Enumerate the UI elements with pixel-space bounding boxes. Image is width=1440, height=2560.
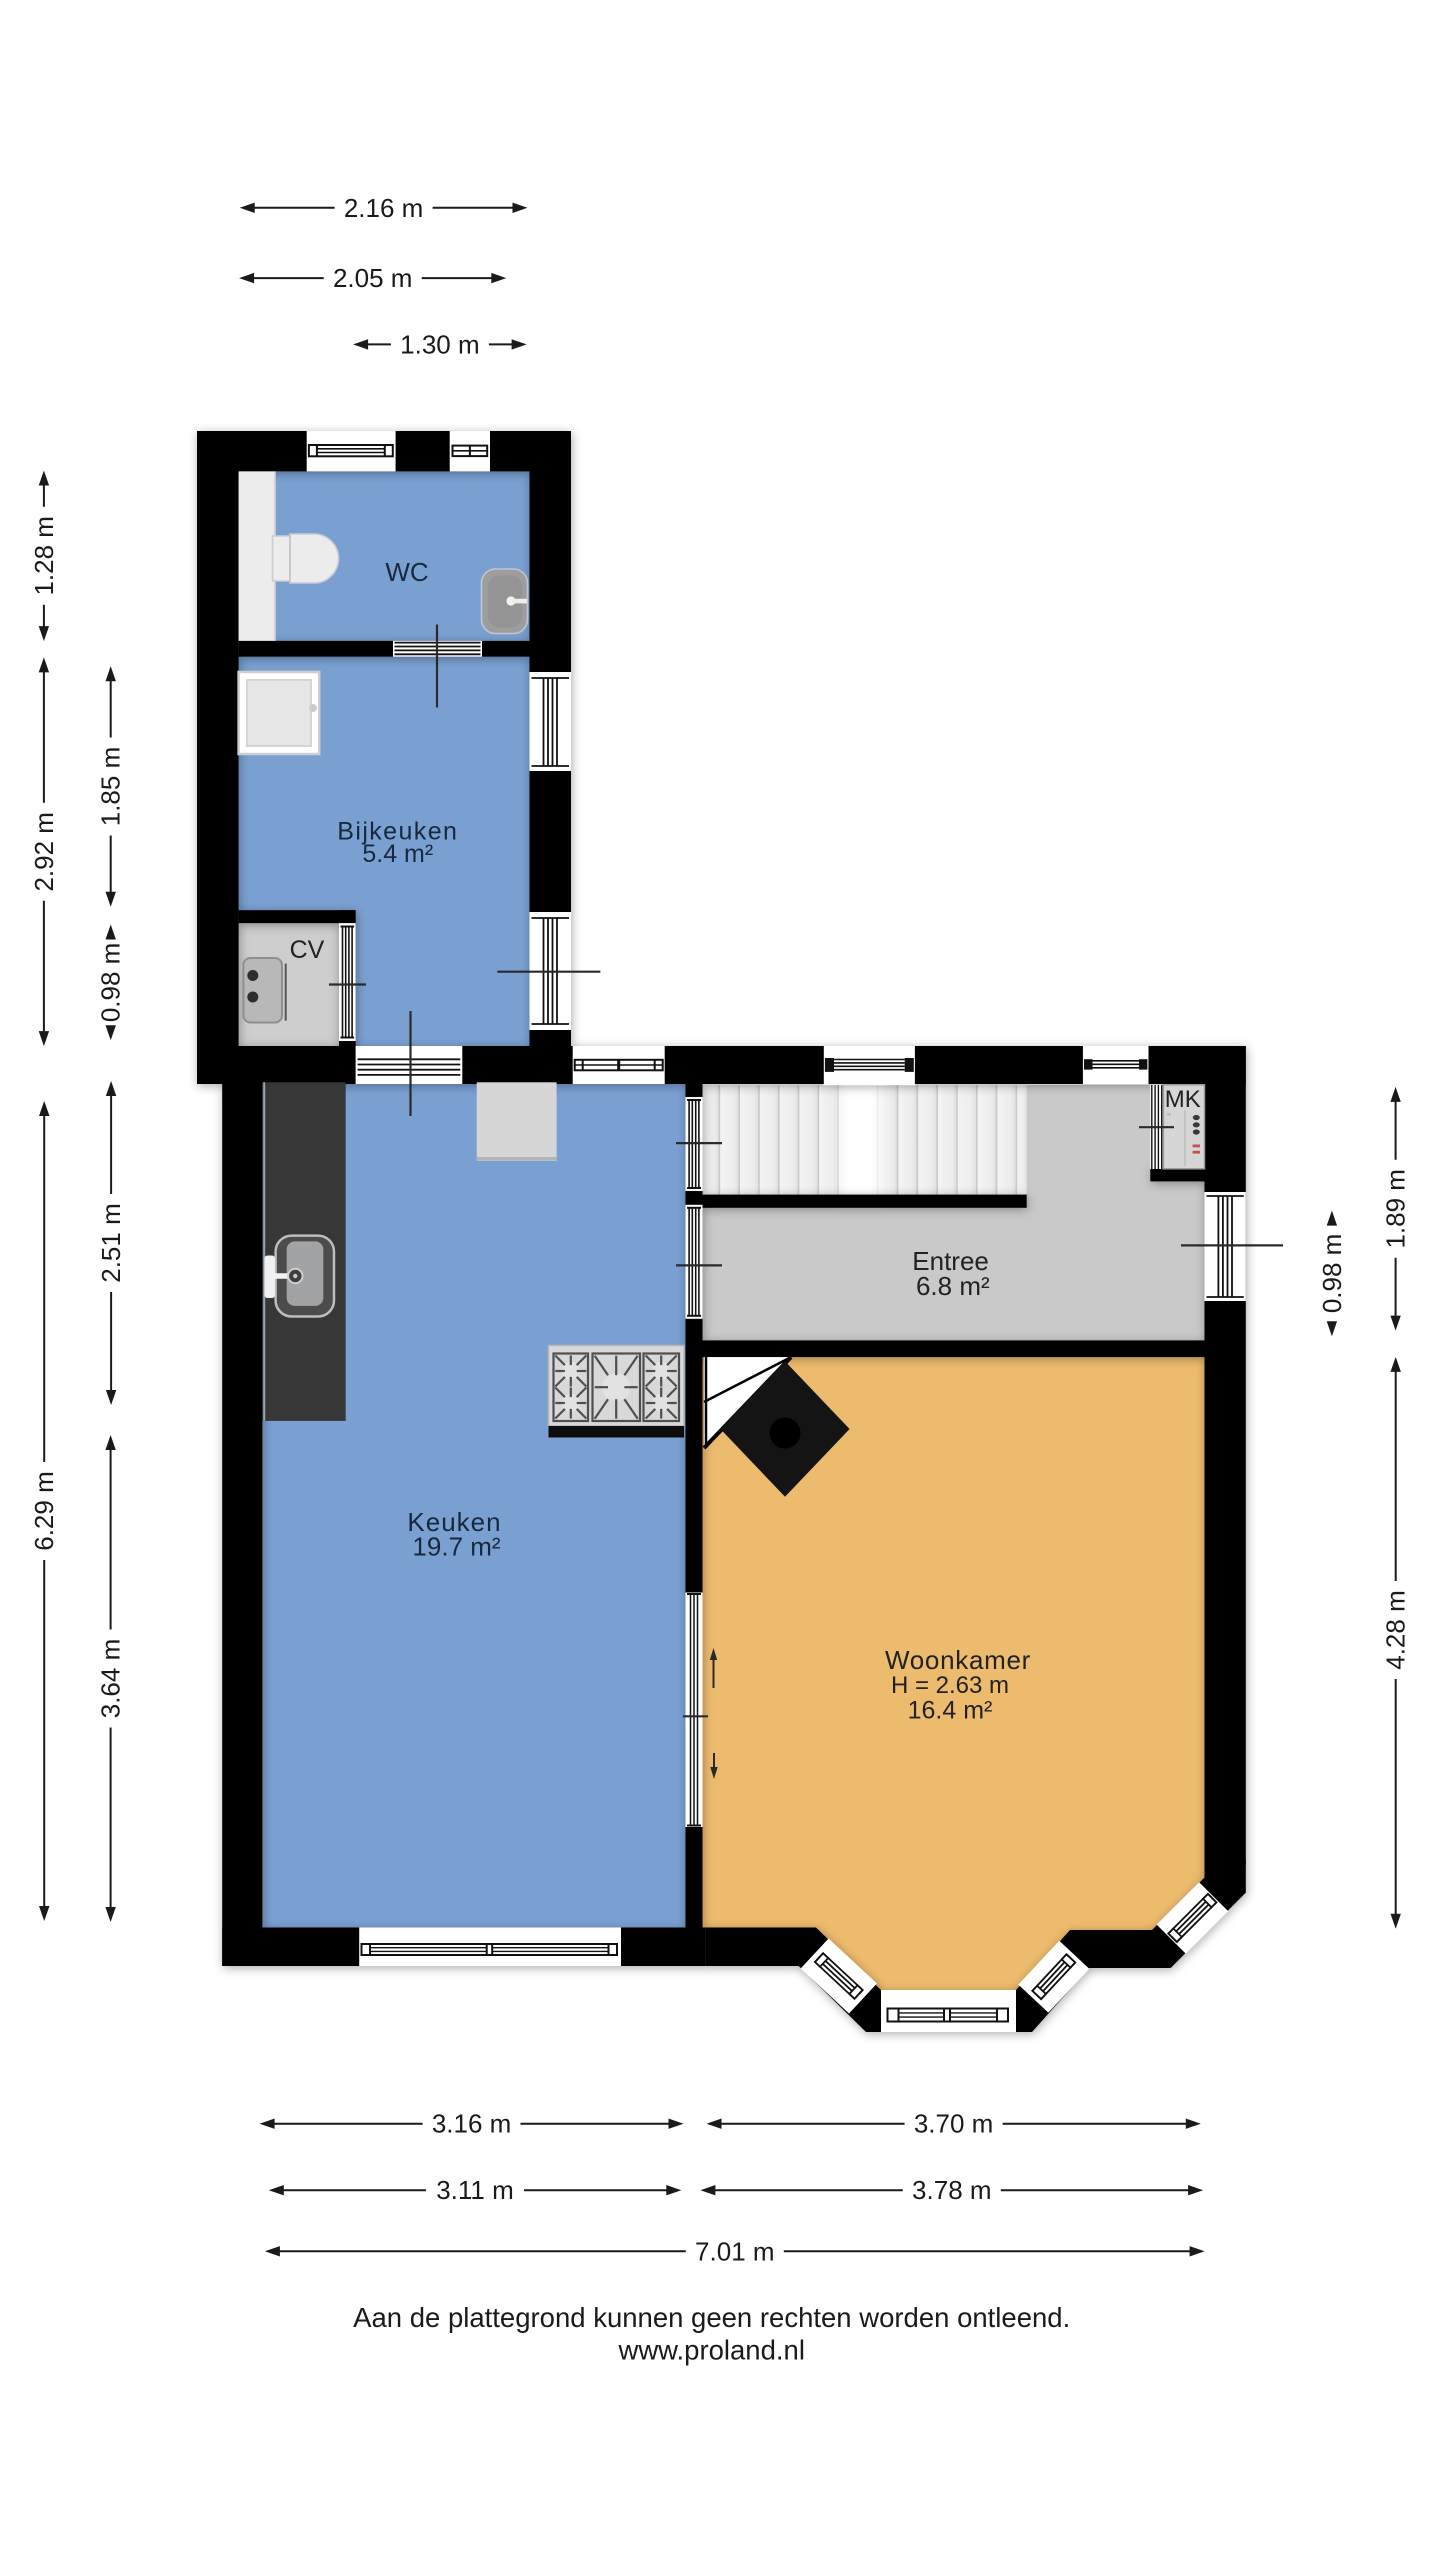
svg-text:19.7 m²: 19.7 m²	[412, 1532, 500, 1562]
svg-text:WC: WC	[385, 557, 428, 587]
svg-text:1.89 m: 1.89 m	[1381, 1169, 1411, 1249]
svg-text:H = 2.63 m: H = 2.63 m	[891, 1672, 1009, 1699]
svg-text:1.85 m: 1.85 m	[96, 747, 126, 827]
svg-text:0.98 m: 0.98 m	[96, 943, 126, 1023]
svg-text:6.29 m: 6.29 m	[29, 1471, 59, 1551]
svg-text:5.4 m²: 5.4 m²	[362, 840, 433, 868]
svg-text:3.16 m: 3.16 m	[432, 2109, 512, 2139]
svg-text:1.28 m: 1.28 m	[29, 516, 59, 596]
svg-text:2.51 m: 2.51 m	[96, 1203, 126, 1283]
svg-text:Woonkamer: Woonkamer	[885, 1645, 1031, 1675]
svg-text:3.64 m: 3.64 m	[96, 1639, 126, 1719]
svg-text:CV: CV	[290, 936, 325, 964]
svg-text:MK: MK	[1165, 1086, 1201, 1113]
svg-text:6.8 m²: 6.8 m²	[916, 1271, 990, 1301]
svg-text:www.proland.nl: www.proland.nl	[617, 2335, 804, 2366]
svg-text:2.16 m: 2.16 m	[344, 193, 424, 223]
svg-text:Aan de plattegrond kunnen geen: Aan de plattegrond kunnen geen rechten w…	[353, 2302, 1070, 2333]
svg-text:2.92 m: 2.92 m	[29, 812, 59, 892]
svg-text:3.70 m: 3.70 m	[914, 2109, 994, 2139]
svg-text:0.98 m: 0.98 m	[1317, 1234, 1347, 1314]
svg-text:3.78 m: 3.78 m	[912, 2175, 992, 2205]
svg-text:1.30 m: 1.30 m	[400, 329, 480, 359]
svg-text:2.05 m: 2.05 m	[333, 263, 413, 293]
svg-text:16.4 m²: 16.4 m²	[908, 1697, 993, 1725]
svg-text:4.28 m: 4.28 m	[1381, 1590, 1411, 1670]
svg-text:3.11 m: 3.11 m	[436, 2175, 514, 2205]
svg-text:7.01 m: 7.01 m	[695, 2236, 775, 2266]
